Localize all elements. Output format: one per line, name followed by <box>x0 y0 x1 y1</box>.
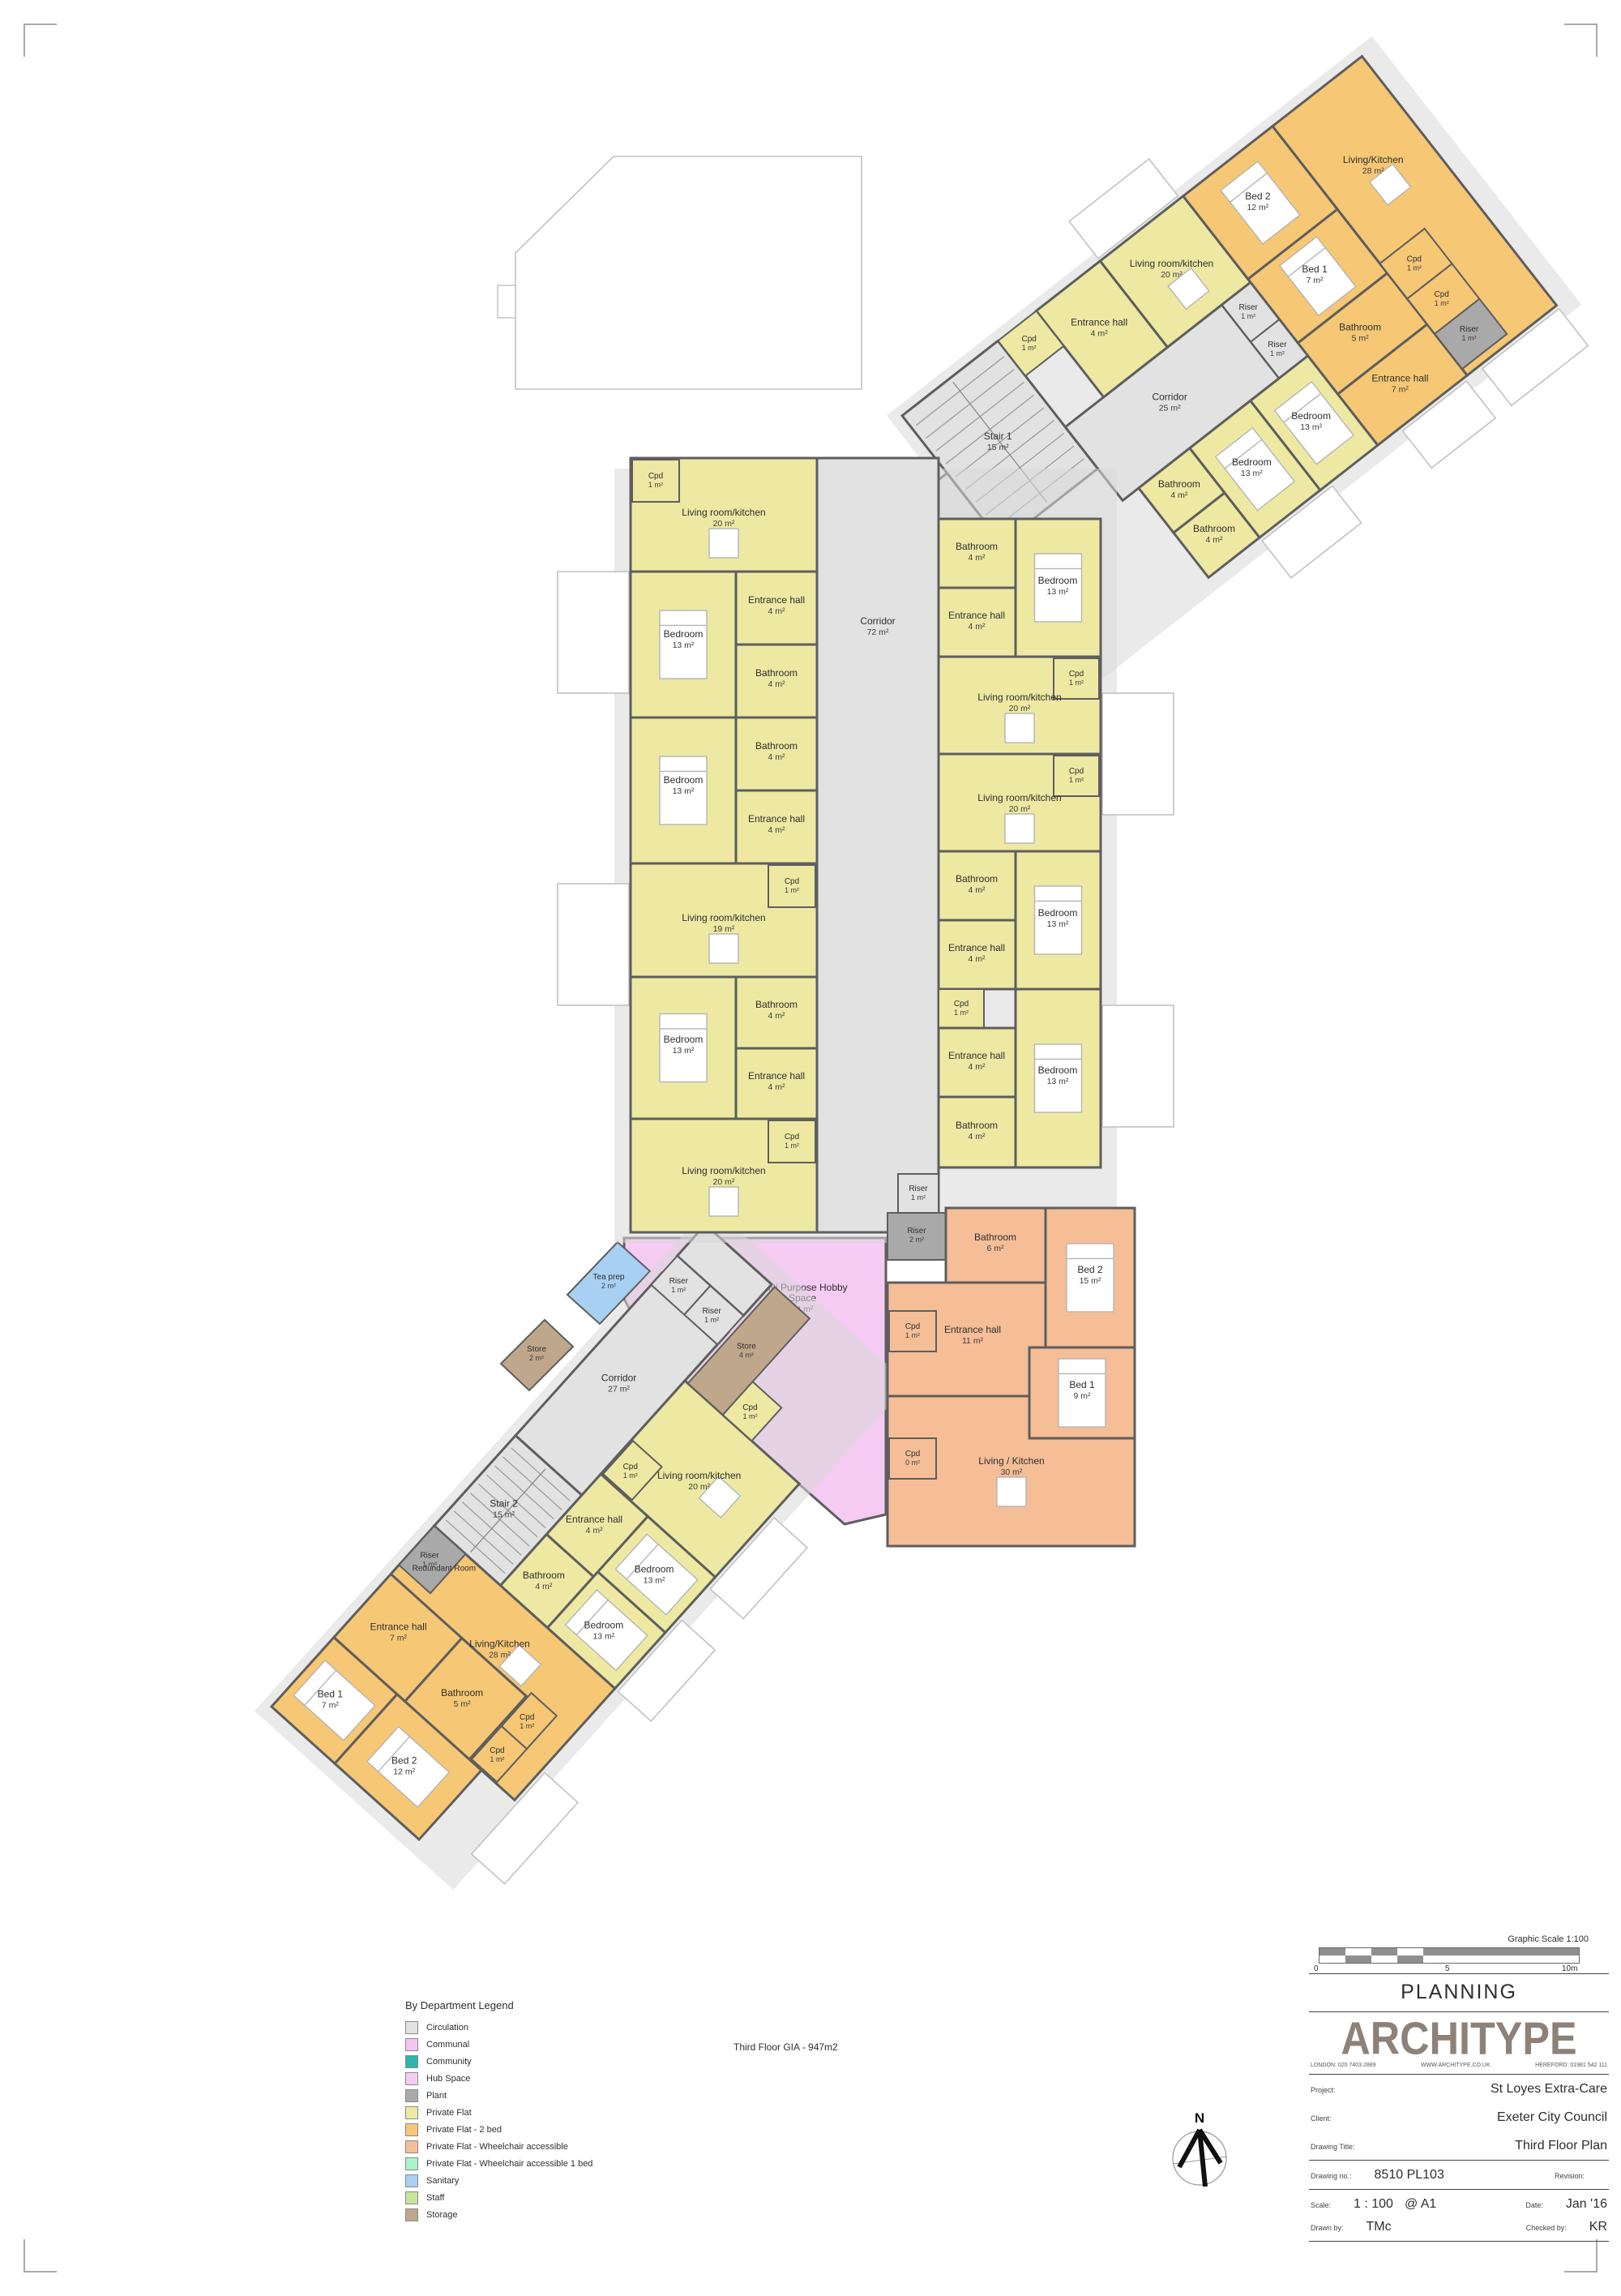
legend: By Department Legend CirculationCommunal… <box>405 1999 673 2223</box>
balcony <box>1102 1005 1174 1127</box>
room-label: Cpd1 m² <box>623 1463 638 1480</box>
legend-label: Hub Space <box>426 2074 470 2084</box>
legend-title: By Department Legend <box>405 1999 673 2011</box>
drawing-sheet: Multi Purpose HobbySpace54 m² Tea prep2 … <box>0 0 1621 2296</box>
room-label: Stair 115 m² <box>984 430 1012 452</box>
title-block: PLANNING ARCHITYPE LONDON: 020 7403 2889… <box>1309 1973 1609 2242</box>
legend-rows: CirculationCommunalCommunityHub SpacePla… <box>405 2019 673 2223</box>
checked-by-value: KR <box>1589 2220 1607 2234</box>
legend-swatch-community <box>405 2055 418 2068</box>
legend-item: Private Flat <box>405 2104 673 2121</box>
north-label: N <box>1195 2110 1204 2126</box>
checked-by-label: Checked by: <box>1526 2224 1567 2232</box>
flat-wheelchair-accessible: Riser2 m² Living / Kitchen30 m² Entrance… <box>887 1208 1135 1546</box>
legend-label: Staff <box>426 2193 444 2203</box>
room-label: Cpd1 m² <box>1069 767 1084 784</box>
balcony <box>558 884 629 1005</box>
scale-segment <box>1423 1955 1449 1963</box>
table-symbol <box>709 529 738 558</box>
room-label: Cpd1 m² <box>1407 255 1422 272</box>
legend-label: Private Flat <box>426 2108 472 2118</box>
room-label: Cpd1 m² <box>954 1000 969 1017</box>
scale-segment <box>1449 1948 1579 1955</box>
legend-item: Plant <box>405 2087 673 2104</box>
room-label: Cpd1 m² <box>1021 335 1036 352</box>
table-symbol <box>709 934 738 963</box>
project-value: St Loyes Extra-Care <box>1336 2082 1607 2097</box>
legend-swatch-storage <box>405 2208 418 2221</box>
legend-item: Storage <box>405 2206 673 2223</box>
drawing-no-value: 8510 PL103 <box>1375 2168 1444 2182</box>
legend-item: Communal <box>405 2036 673 2053</box>
room-label: Bed 212 m² <box>391 1755 417 1777</box>
legend-swatch-circulation <box>405 2021 418 2034</box>
room-label: Cpd1 m² <box>648 472 663 489</box>
room-label: Bed 212 m² <box>1245 191 1271 212</box>
room-label: Cpd0 m² <box>905 1450 920 1467</box>
legend-label: Private Flat - Wheelchair accessible 1 b… <box>426 2159 592 2169</box>
scale-segment <box>1319 1948 1345 1955</box>
room-label: Cpd1 m² <box>1069 670 1084 687</box>
room <box>817 458 939 1232</box>
room-label: Riser1 m² <box>1238 303 1258 320</box>
drawing-title-label: Drawing Title: <box>1311 2143 1355 2151</box>
graphic-scale: Graphic Scale 1:100 0 5 10m <box>1309 1934 1589 1975</box>
legend-label: Storage <box>426 2210 458 2220</box>
room-label: Stair 215 m² <box>490 1497 518 1519</box>
legend-label: Private Flat - 2 bed <box>426 2125 502 2135</box>
room-label: Cpd1 m² <box>1435 290 1449 307</box>
room-label: Cpd1 m² <box>490 1746 504 1763</box>
table-symbol <box>1005 713 1034 743</box>
legend-label: Sanitary <box>426 2176 459 2186</box>
room-label: Riser1 m² <box>1268 341 1287 358</box>
project-label: Project: <box>1311 2086 1336 2094</box>
legend-swatch-flat <box>405 2106 418 2119</box>
legend-swatch-sanitary <box>405 2174 418 2187</box>
room-label: Bed 215 m² <box>1077 1264 1103 1286</box>
wing-middle: Corridor72 m² Living room/kitchen20 m² C… <box>558 458 1174 1243</box>
room-label: Redundant Room <box>413 1564 476 1573</box>
drawn-by-label: Drawn by: <box>1311 2224 1344 2232</box>
legend-swatch-wheelchair <box>405 2140 418 2153</box>
legend-item: Private Flat - Wheelchair accessible 1 b… <box>405 2155 673 2172</box>
scale-segment <box>1345 1948 1371 1955</box>
scale-segment <box>1371 1948 1397 1955</box>
scale-label-0: 0 <box>1314 1964 1319 1973</box>
legend-label: Circulation <box>426 2023 468 2033</box>
scale-label: Scale: <box>1311 2201 1331 2209</box>
room-label: Riser1 m² <box>909 1184 928 1202</box>
north-arrow: N <box>1165 2108 1234 2201</box>
architype-logo: ARCHITYPE <box>1291 2007 1621 2067</box>
adjacent-building-outline <box>515 156 862 389</box>
room-label: Store4 m² <box>737 1343 756 1360</box>
legend-label: Private Flat - Wheelchair accessible <box>426 2142 568 2152</box>
room-label: Cpd1 m² <box>785 877 799 894</box>
drawn-by-value: TMc <box>1367 2220 1392 2234</box>
paper-size: @ A1 <box>1405 2197 1436 2212</box>
table-symbol <box>1005 814 1034 843</box>
legend-item: Private Flat - Wheelchair accessible <box>405 2138 673 2155</box>
date-label: Date: <box>1525 2201 1543 2209</box>
room-label: Cpd1 m² <box>785 1133 799 1150</box>
table-symbol <box>709 1187 738 1216</box>
adjacent-building-notch <box>498 285 515 318</box>
legend-swatch-plant <box>405 2089 418 2102</box>
scale-segment <box>1449 1955 1579 1963</box>
room-label: Cpd1 m² <box>905 1322 920 1339</box>
drawing-title-value: Third Floor Plan <box>1355 2139 1607 2153</box>
legend-swatch-staff <box>405 2191 418 2204</box>
scale-value: 1 : 100 <box>1354 2197 1393 2212</box>
scale-segment <box>1397 1955 1423 1963</box>
room-label: Store2 m² <box>527 1345 546 1362</box>
legend-label: Plant <box>426 2091 447 2101</box>
scale-label-5: 5 <box>1445 1964 1450 1973</box>
scale-segment <box>1423 1948 1449 1955</box>
client-label: Client: <box>1311 2114 1332 2123</box>
legend-item: Private Flat - 2 bed <box>405 2121 673 2138</box>
drawing-no-label: Drawing no.: <box>1311 2172 1352 2180</box>
scale-segment <box>1397 1948 1423 1955</box>
legend-item: Hub Space <box>405 2070 673 2087</box>
gia-note: Third Floor GIA - 947m2 <box>734 2041 838 2053</box>
legend-swatch-hub <box>405 2072 418 2085</box>
room-label: Riser1 m² <box>669 1277 689 1294</box>
room-label: Cpd1 m² <box>520 1713 534 1730</box>
legend-item: Community <box>405 2053 673 2070</box>
legend-item: Staff <box>405 2189 673 2206</box>
scale-segment <box>1319 1955 1345 1963</box>
graphic-scale-title: Graphic Scale 1:100 <box>1309 1934 1589 1944</box>
legend-swatch-communal <box>405 2038 418 2051</box>
revision-label: Revision: <box>1555 2172 1585 2180</box>
scale-segment <box>1345 1955 1371 1963</box>
room-label: Riser1 m² <box>1460 325 1479 342</box>
table-symbol <box>997 1477 1026 1506</box>
legend-item: Sanitary <box>405 2172 673 2189</box>
legend-label: Communal <box>426 2040 469 2050</box>
graphic-scale-bar <box>1319 1947 1580 1964</box>
legend-swatch-wheelchair1bed <box>405 2157 418 2170</box>
client-value: Exeter City Council <box>1332 2110 1607 2125</box>
room-label: Riser2 m² <box>907 1227 926 1244</box>
balcony <box>558 572 629 693</box>
room-label: Cpd1 m² <box>742 1403 757 1420</box>
scale-label-10: 10m <box>1562 1964 1577 1973</box>
scale-segment <box>1371 1955 1397 1963</box>
legend-item: Circulation <box>405 2019 673 2036</box>
legend-swatch-flat2bed <box>405 2123 418 2136</box>
date-value: Jan '16 <box>1566 2197 1607 2212</box>
balcony <box>1102 693 1174 815</box>
legend-label: Community <box>426 2057 472 2067</box>
room-label: Riser1 m² <box>702 1307 721 1324</box>
